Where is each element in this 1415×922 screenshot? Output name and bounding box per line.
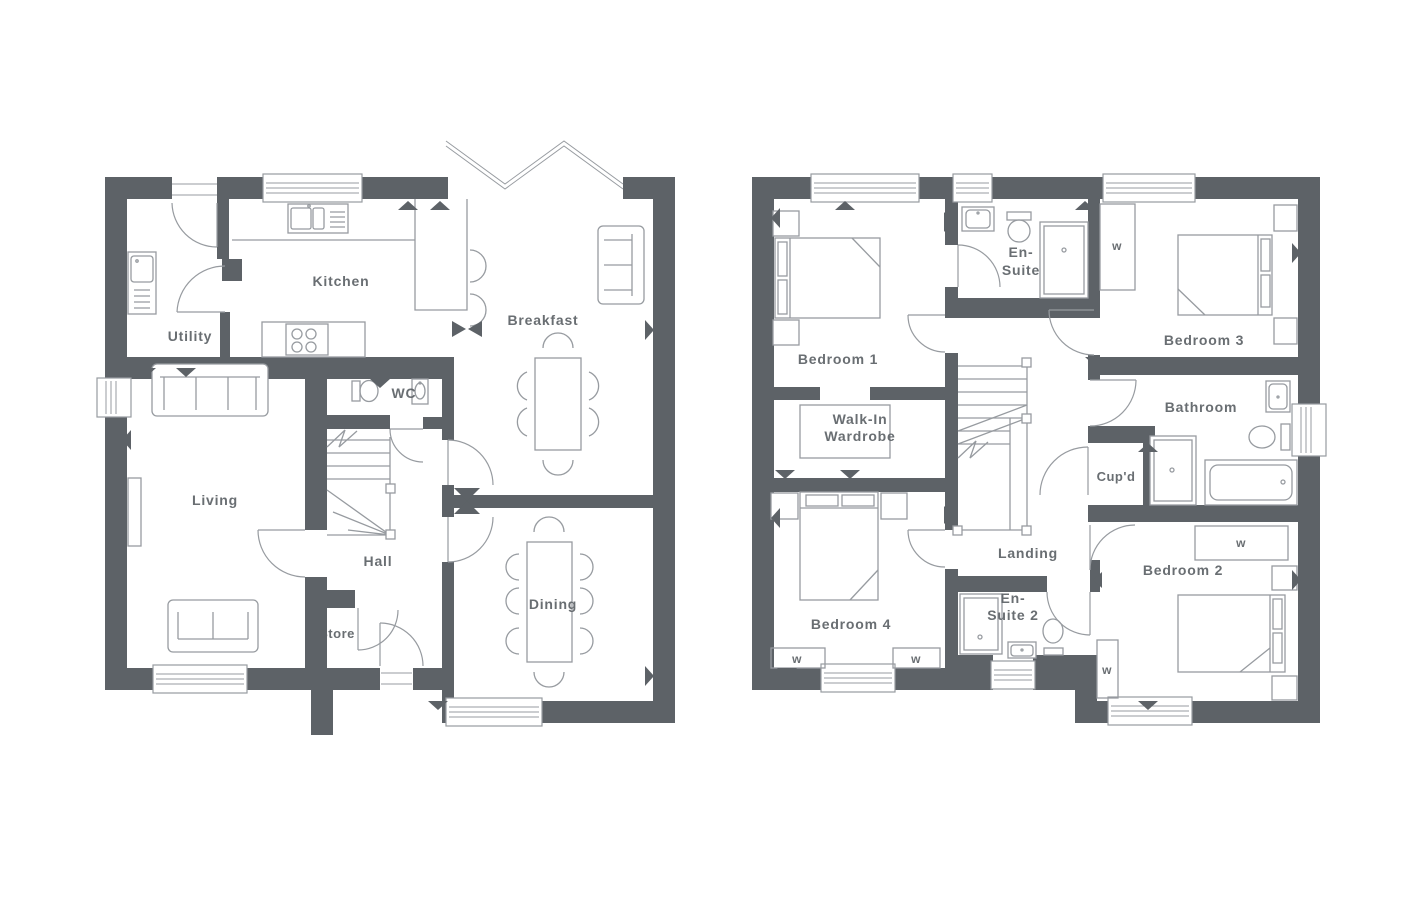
- sofa-large: [152, 364, 268, 416]
- breakfast-label: Breakfast: [507, 312, 578, 328]
- ensuite-label-line2: Suite: [1002, 262, 1040, 278]
- bathroom-label: Bathroom: [1165, 399, 1238, 415]
- bedroom4-label: Bedroom 4: [811, 616, 891, 632]
- landing-label: Landing: [998, 545, 1058, 561]
- wc-label: WC: [392, 385, 417, 401]
- ensuite2-window: [991, 661, 1035, 689]
- kitchen-label: Kitchen: [313, 273, 370, 289]
- cupboard-label: Cup'd: [1097, 469, 1136, 484]
- back-door-threshold: [172, 184, 217, 195]
- ensuite2-toilet: [1043, 619, 1063, 655]
- store-door: [358, 608, 398, 650]
- breakfast-door: [448, 440, 493, 485]
- sofa-small: [168, 600, 258, 652]
- ensuite-shower: [1040, 222, 1088, 298]
- first-floor-plan: Bedroom 1 En- Suite Bedroom 3 Walk-In Wa…: [752, 174, 1326, 725]
- bedroom3-window: [1103, 174, 1195, 202]
- bedroom4-bed: [800, 492, 878, 600]
- ensuite2-shower: [960, 594, 1002, 654]
- tv-unit: [128, 478, 141, 546]
- front-door: [380, 623, 423, 666]
- bedroom4-wardrobe-mark-left: w: [791, 652, 802, 666]
- ground-floor-plan: Kitchen Breakfast Utility WC Living Hall…: [97, 141, 675, 735]
- bedroom2-label: Bedroom 2: [1143, 562, 1223, 578]
- bedroom3-wardrobe-mark: w: [1111, 239, 1122, 253]
- cupboard-door: [1040, 447, 1088, 495]
- bedroom2-wardrobe-mark-top: w: [1235, 536, 1246, 550]
- bedroom2-wardrobe-mark-side: w: [1101, 663, 1112, 677]
- bathroom-basin: [1266, 381, 1290, 412]
- ensuite-window: [953, 174, 992, 202]
- living-label: Living: [192, 492, 238, 508]
- bedroom1-bed: [775, 238, 880, 318]
- living-side-window: [97, 378, 131, 417]
- hall-label: Hall: [364, 553, 393, 569]
- bedroom4-door: [908, 530, 945, 567]
- ensuite2-label-line1: En-: [1001, 590, 1026, 606]
- bedroom1-window: [811, 174, 919, 202]
- hob-counter: [262, 322, 365, 357]
- breakfast-table: [517, 333, 598, 475]
- ensuite2-basin: [1008, 642, 1036, 658]
- bar-stools: [470, 250, 486, 326]
- back-door: [172, 203, 217, 247]
- ensuite-basin: [962, 207, 994, 231]
- bathroom-window: [1292, 404, 1326, 456]
- kitchen-sink: [288, 204, 348, 233]
- walkin-label-line2: Wardrobe: [824, 428, 895, 444]
- bedroom4-window: [821, 664, 895, 692]
- bifold-doors: [446, 141, 623, 189]
- wc-toilet: [352, 381, 378, 402]
- bedroom3-bed: [1178, 235, 1272, 315]
- living-front-window: [153, 665, 247, 693]
- bedroom2-bed: [1178, 595, 1285, 672]
- kitchen-window: [263, 174, 362, 202]
- bathroom-toilet: [1249, 424, 1290, 450]
- ground-floor-stairs: [327, 430, 395, 539]
- ground-floor-furniture: [128, 199, 644, 687]
- bedroom3-label: Bedroom 3: [1164, 332, 1244, 348]
- bedroom1-door: [908, 315, 945, 352]
- bedroom4-wardrobe-mark-right: w: [910, 652, 921, 666]
- dining-label: Dining: [529, 596, 577, 612]
- ensuite-toilet: [1007, 212, 1031, 242]
- utility-door: [177, 266, 225, 312]
- bedroom1-label: Bedroom 1: [798, 351, 878, 367]
- walkin-label-line1: Walk-In: [833, 411, 888, 427]
- wc-door: [390, 429, 423, 462]
- living-door: [258, 530, 305, 577]
- breakfast-sofa: [598, 226, 644, 304]
- floorplan-canvas: Kitchen Breakfast Utility WC Living Hall…: [0, 0, 1415, 917]
- floorplan-page: Kitchen Breakfast Utility WC Living Hall…: [0, 0, 1415, 917]
- bathroom-bath: [1205, 460, 1297, 505]
- bedroom3-bedside-tables: [1274, 205, 1297, 344]
- front-door-threshold: [381, 673, 412, 684]
- dining-door: [448, 517, 493, 562]
- ensuite2-door: [1047, 592, 1090, 635]
- dining-window: [446, 698, 542, 726]
- washing-machine: [128, 252, 156, 314]
- ensuite-label-line1: En-: [1009, 244, 1034, 260]
- first-floor-stairs: [953, 358, 1031, 535]
- ensuite2-label-line2: Suite 2: [987, 607, 1039, 623]
- store-label: Store: [319, 626, 355, 641]
- utility-label: Utility: [168, 328, 213, 344]
- ensuite-door: [958, 245, 1000, 287]
- bathroom-shower: [1150, 436, 1196, 505]
- bathroom-door: [1090, 380, 1136, 426]
- kitchen-counter: [232, 199, 467, 310]
